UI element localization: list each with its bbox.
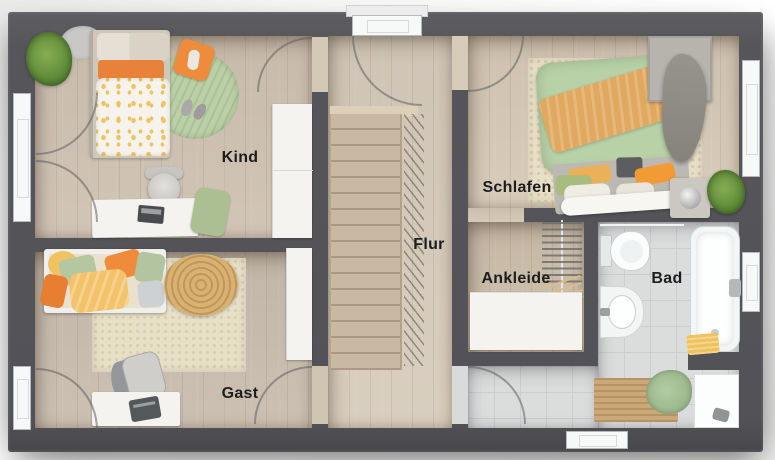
doorway-kind (312, 37, 328, 92)
pouf-gast (164, 254, 238, 316)
nightstand (670, 178, 710, 218)
label-gast: Gast (222, 385, 259, 403)
window-kind (13, 93, 31, 222)
toy-bunny (187, 49, 201, 70)
label-flur: Flur (413, 236, 444, 254)
wardrobe-gast (286, 248, 312, 360)
bed-kind (90, 30, 170, 158)
towel-rail (600, 221, 684, 229)
bed-kind-duvet (96, 78, 170, 156)
window-bad-bottom (566, 431, 628, 449)
bathtub-faucet (729, 279, 741, 297)
shower-head (712, 407, 731, 423)
daybed-blanket (68, 268, 130, 314)
daybed-pillow-gray (137, 280, 166, 309)
desk-kind (92, 198, 199, 238)
sink-basin (608, 295, 636, 329)
window-bad-right (742, 252, 760, 312)
shower (694, 374, 739, 428)
radio-line (133, 401, 155, 408)
label-ankleide: Ankleide (481, 270, 550, 288)
plant-schlafen (707, 170, 745, 214)
console-gast (92, 392, 180, 426)
wardrobe-kind-seam (273, 170, 313, 171)
dome-lamp (679, 187, 701, 209)
toilet-bowl (610, 231, 650, 271)
doorway-schlafen (452, 36, 468, 90)
label-schlafen: Schlafen (482, 179, 551, 197)
doorway-gast (312, 366, 328, 424)
daybed-gast (44, 249, 166, 313)
towel-pile-green (646, 370, 692, 414)
laptop (137, 205, 164, 224)
towel-yellow (686, 333, 720, 356)
toilet-seat (620, 240, 643, 263)
balcony-door (352, 15, 422, 36)
bed-kind-orange-pillow (98, 60, 164, 80)
window-gast (13, 366, 31, 430)
doorway-bad (452, 366, 468, 424)
toilet (600, 230, 652, 272)
sink (600, 286, 644, 338)
floor-plan: Kind Gast Flur Schlafen Ankleide Bad (0, 0, 775, 460)
towel-rail-bar (600, 224, 684, 227)
plant-kind (26, 32, 72, 86)
dresser-ankleide (470, 292, 582, 350)
bath-half-wall (688, 352, 739, 370)
window-schlafen (742, 60, 760, 177)
opening-ankleide (468, 208, 524, 222)
label-bad: Bad (651, 270, 682, 288)
sink-faucet (600, 308, 610, 316)
bed-kind-pillows (97, 33, 169, 61)
laptop-screen (141, 208, 161, 215)
wardrobe-kind (272, 104, 312, 238)
label-kind: Kind (222, 149, 259, 167)
staircase (330, 114, 402, 370)
radio (128, 396, 161, 423)
